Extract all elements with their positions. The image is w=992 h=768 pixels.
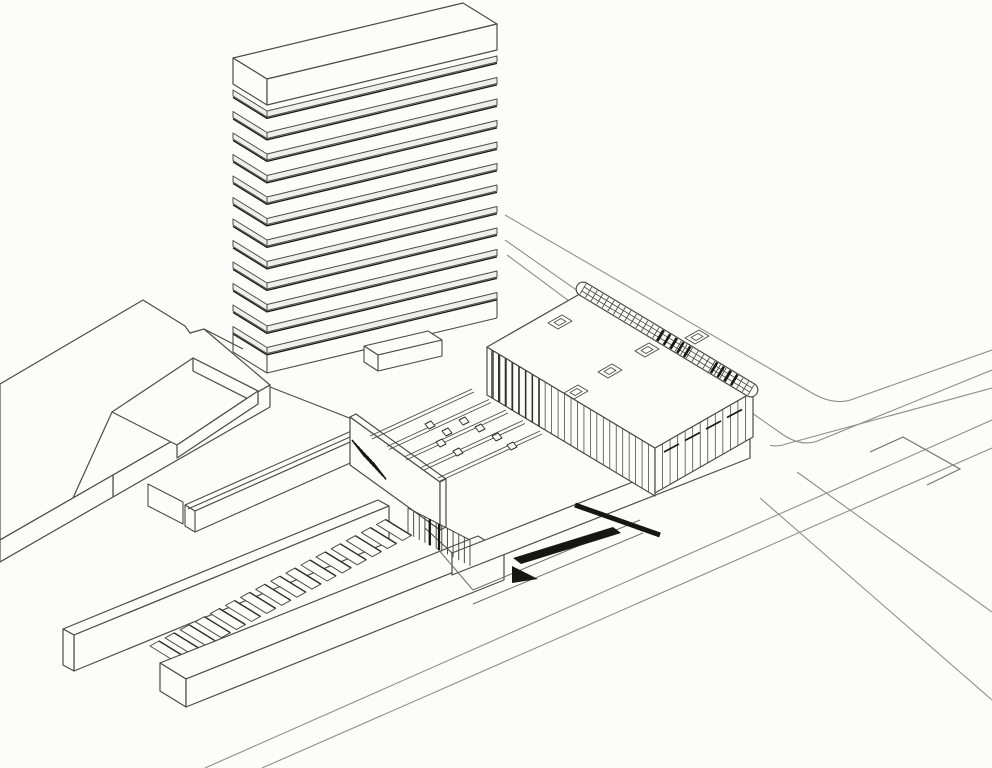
rooflight — [685, 330, 709, 344]
slab-tower — [233, 3, 497, 373]
bridge-link — [148, 484, 183, 524]
terrace-parapet-wall-end — [440, 479, 446, 530]
street-corner-marking — [870, 437, 960, 485]
walkway-parapet-line — [188, 429, 368, 509]
axonometric-site-drawing — [0, 0, 992, 768]
street-curb-right-1 — [797, 472, 992, 612]
stair-upper-wall-end — [63, 629, 74, 671]
ground-joint-line — [270, 387, 352, 419]
scanned-drawing-page — [0, 0, 992, 768]
